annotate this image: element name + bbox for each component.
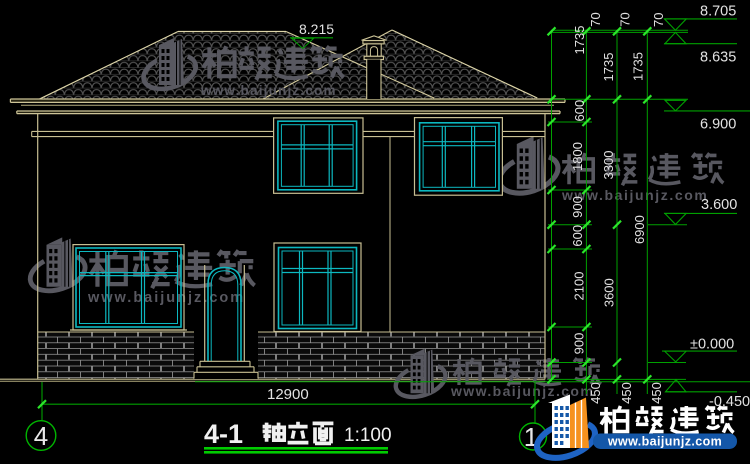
svg-text:1800: 1800 (570, 142, 585, 171)
svg-text:70: 70 (618, 12, 633, 26)
svg-text:3600: 3600 (602, 278, 617, 307)
svg-text:600: 600 (570, 225, 585, 247)
svg-text:2100: 2100 (572, 272, 587, 301)
svg-text:www.baijunjz.com: www.baijunjz.com (450, 383, 594, 399)
svg-text:1735: 1735 (572, 26, 587, 55)
svg-text:1:100: 1:100 (344, 425, 392, 446)
svg-text:3.600: 3.600 (701, 197, 737, 213)
svg-text:±0.000: ±0.000 (690, 337, 734, 353)
svg-text:600: 600 (572, 100, 587, 122)
svg-text:8.705: 8.705 (700, 4, 736, 20)
svg-text:450: 450 (588, 382, 603, 404)
svg-text:8.635: 8.635 (700, 50, 736, 66)
svg-text:www.baijunjz.com: www.baijunjz.com (87, 290, 245, 306)
svg-text:www.baijunjz.com: www.baijunjz.com (200, 83, 337, 98)
svg-text:450: 450 (649, 382, 664, 404)
svg-text:www.baijunjz.com: www.baijunjz.com (607, 435, 722, 449)
svg-text:70: 70 (651, 13, 666, 27)
svg-text:70: 70 (588, 12, 603, 26)
svg-text:1735: 1735 (601, 53, 616, 82)
svg-text:4: 4 (34, 421, 48, 451)
svg-text:900: 900 (570, 196, 585, 218)
svg-text:450: 450 (619, 382, 634, 404)
svg-text:6.900: 6.900 (700, 117, 736, 133)
svg-text:1735: 1735 (631, 52, 646, 81)
svg-text:8.215: 8.215 (299, 21, 334, 37)
svg-text:3300: 3300 (601, 151, 616, 180)
svg-text:12900: 12900 (267, 386, 309, 403)
svg-text:900: 900 (572, 333, 587, 355)
svg-text:6900: 6900 (632, 215, 647, 244)
svg-text:4-1: 4-1 (204, 419, 243, 449)
